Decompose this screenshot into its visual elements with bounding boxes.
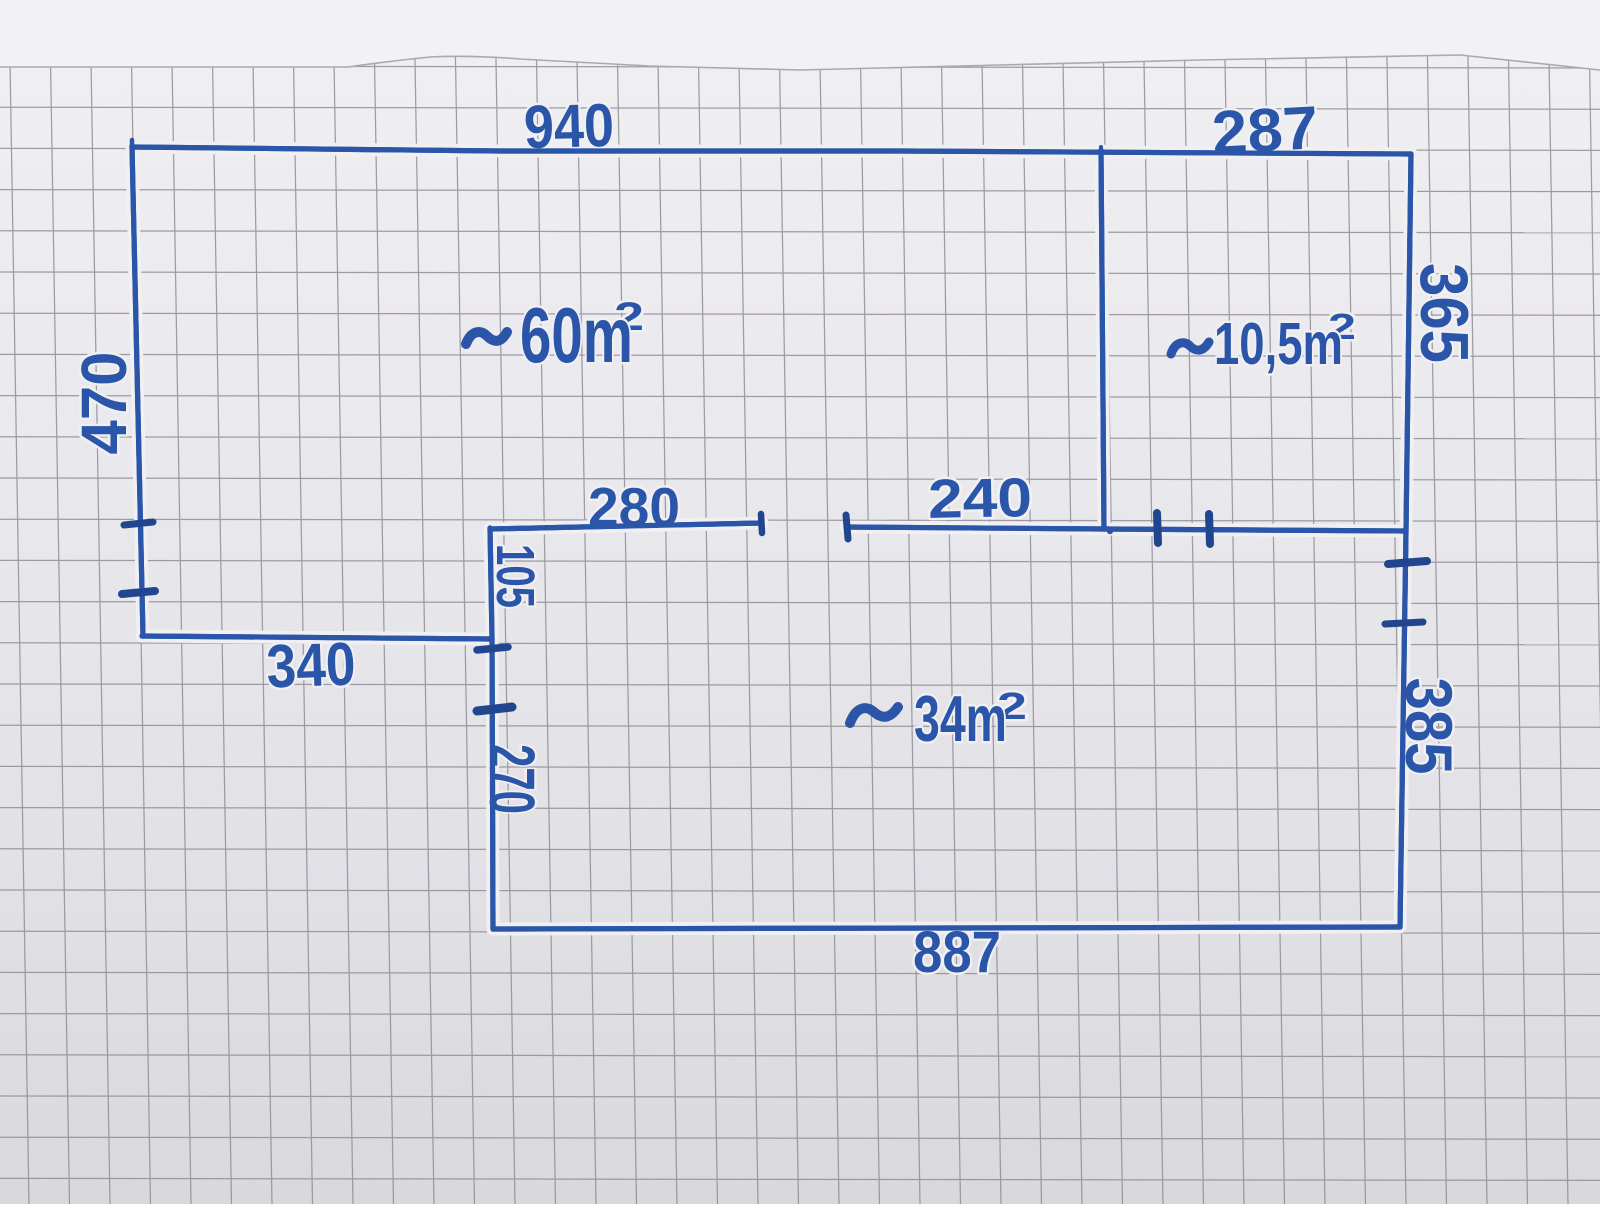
svg-text:240: 240	[927, 466, 1032, 530]
svg-text:365: 365	[1406, 263, 1482, 363]
svg-text:10,5m: 10,5m	[1214, 311, 1343, 377]
svg-text:60m: 60m	[520, 291, 633, 379]
svg-text:270: 270	[476, 744, 548, 814]
svg-text:105: 105	[485, 544, 545, 608]
svg-text:470: 470	[68, 352, 140, 455]
svg-text:34m: 34m	[914, 682, 1007, 755]
